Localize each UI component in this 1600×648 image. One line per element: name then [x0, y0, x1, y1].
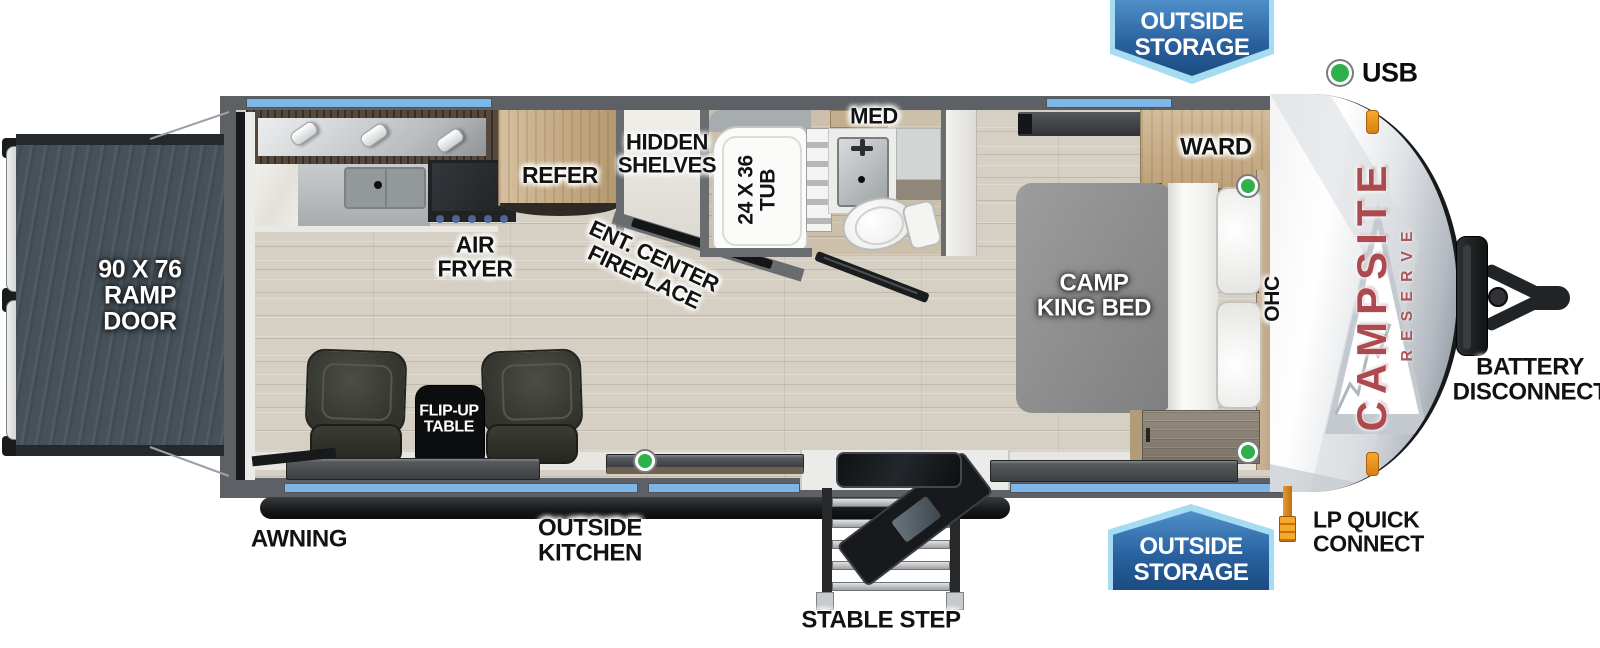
lp-pipe: [1283, 486, 1292, 518]
lp-quick-connect-label: LP QUICK CONNECT: [1313, 508, 1424, 555]
ward-label: WARD: [1180, 136, 1252, 161]
clearance-light-icon: [1366, 452, 1379, 476]
ramp-door-label: 90 X 76 RAMP DOOR: [98, 257, 181, 334]
battery-box-slot: [1463, 245, 1471, 349]
usb-indicator-icon: [635, 451, 655, 471]
battery-disconnect-label: BATTERY DISCONNECT: [1453, 355, 1600, 404]
clearance-light-icon: [1366, 110, 1379, 134]
brand-name-text: CAMPSITE: [1348, 158, 1396, 431]
usb-indicator-icon: [1238, 176, 1258, 196]
outside-kitchen-label: OUTSIDE KITCHEN: [538, 516, 642, 565]
hitch-coupler: [1532, 286, 1570, 310]
lp-connector: [1279, 516, 1296, 542]
battery-box: [1456, 236, 1488, 356]
awning-label: AWNING: [251, 528, 347, 553]
stable-step-label: STABLE STEP: [801, 609, 960, 634]
usb-indicator-icon: [1328, 61, 1352, 85]
usb-indicator-icon: [1238, 442, 1258, 462]
air-fryer-label: AIR FRYER: [437, 233, 512, 280]
outside-storage-banner-bottom-label: OUTSIDE STORAGE: [1108, 534, 1274, 586]
usb-legend-label: USB: [1362, 58, 1418, 89]
ohc-label: OHC: [1262, 276, 1284, 321]
camp-king-bed-label: CAMP KING BED: [1037, 271, 1151, 320]
hitch-hub: [1488, 287, 1508, 307]
refer-label: REFER: [522, 164, 598, 188]
outside-storage-banner-top-label: OUTSIDE STORAGE: [1110, 9, 1274, 61]
hidden-shelves-label: HIDDEN SHELVES: [618, 131, 716, 176]
med-cabinet-label: MED: [850, 106, 898, 129]
flip-up-table-label: FLIP-UP TABLE: [419, 404, 478, 437]
tub-label: 24 X 36 TUB: [735, 155, 778, 225]
brand-series-text: RESERVE: [1399, 222, 1417, 361]
floorplan-canvas: CAMPSITE RESERVE OUTSIDE STORAGE OUTSIDE…: [0, 0, 1600, 648]
